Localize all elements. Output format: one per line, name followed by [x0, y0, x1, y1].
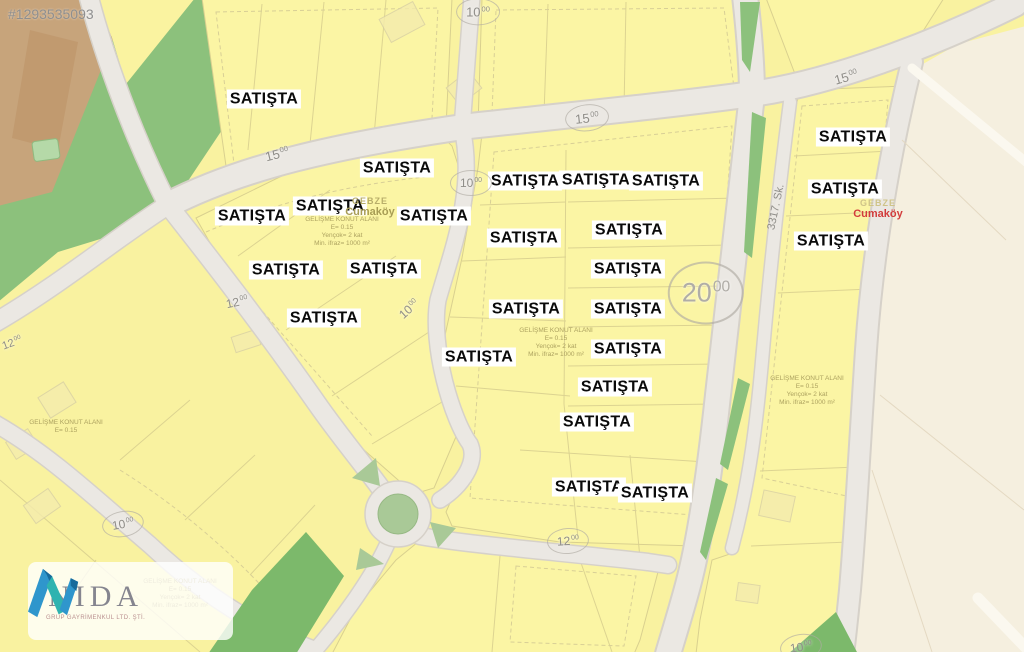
road-width-label: 1000	[778, 631, 823, 652]
road-width-label: 1500	[564, 102, 610, 134]
map-labels-layer: SATIŞTASATIŞTASATIŞTASATIŞTASATIŞTASATIŞ…	[0, 0, 1024, 652]
zoning-note: GELİŞME KONUT ALANIE= 0.15Yençok= 2 katM…	[770, 375, 844, 407]
zoning-note: GELİŞME KONUT ALANIE= 0.15Yençok= 2 katM…	[519, 327, 593, 359]
zoning-note: GELİŞME KONUT ALANIE= 0.15Yençok= 2 katM…	[305, 216, 379, 248]
road-width-label: 1000	[100, 508, 146, 541]
road-width-label: 1200	[0, 334, 23, 353]
sale-label: SATIŞTA	[816, 128, 890, 147]
agency-logo: NIDA GRUP GAYRİMENKUL LTD. ŞTİ.	[28, 562, 233, 640]
sale-label: SATIŞTA	[552, 478, 626, 497]
road-width-label: 1200	[546, 527, 590, 556]
road-width-label: 1000	[456, 0, 500, 26]
street-name-label: 3317. Sk.	[765, 183, 786, 231]
sale-label: SATIŞTA	[215, 207, 289, 226]
sale-label: SATIŞTA	[591, 260, 665, 279]
sale-label: SATIŞTA	[287, 309, 361, 328]
sale-label: SATIŞTA	[794, 232, 868, 251]
sale-label: SATIŞTA	[629, 172, 703, 191]
sale-label: SATIŞTA	[560, 413, 634, 432]
sale-label: SATIŞTA	[227, 90, 301, 109]
road-width-label: 1000	[450, 170, 492, 196]
road-width-label: 1500	[832, 66, 859, 87]
sale-label: SATIŞTA	[397, 207, 471, 226]
road-width-label: 1200	[225, 293, 250, 311]
road-width-label: 2000	[668, 262, 744, 325]
sale-label: SATIŞTA	[360, 159, 434, 178]
sale-label: SATIŞTA	[487, 229, 561, 248]
sale-label: SATIŞTA	[347, 260, 421, 279]
sale-label: SATIŞTA	[591, 340, 665, 359]
sale-label: SATIŞTA	[808, 180, 882, 199]
sale-label: SATIŞTA	[442, 348, 516, 367]
road-width-label: 1500	[264, 144, 291, 165]
sale-label: SATIŞTA	[578, 378, 652, 397]
sale-label: SATIŞTA	[559, 171, 633, 190]
sale-label: SATIŞTA	[618, 484, 692, 503]
sale-label: SATIŞTA	[592, 221, 666, 240]
sale-label: SATIŞTA	[249, 261, 323, 280]
sale-label: SATIŞTA	[488, 172, 562, 191]
road-width-label: 1000	[396, 296, 422, 321]
sale-label: SATIŞTA	[489, 300, 563, 319]
nida-logo-mark	[28, 562, 80, 624]
place-name-label: GEBZECumaköy	[853, 198, 903, 220]
listing-id-watermark: #1293535093	[8, 6, 94, 22]
zoning-note: GELİŞME KONUT ALANIE= 0.15	[29, 419, 103, 435]
sale-label: SATIŞTA	[591, 300, 665, 319]
listing-map-image: SATIŞTASATIŞTASATIŞTASATIŞTASATIŞTASATIŞ…	[0, 0, 1024, 652]
place-name-label: GEBZECumaköy	[345, 196, 395, 218]
